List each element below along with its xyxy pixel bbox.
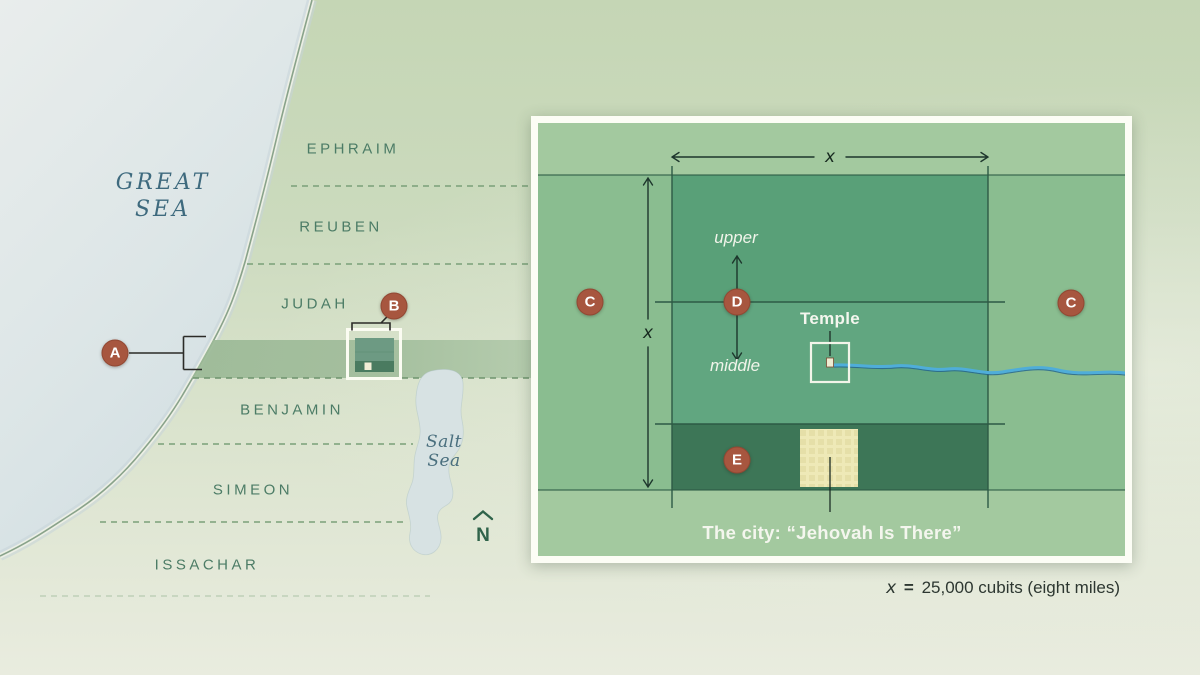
caption-value: 25,000 cubits (eight miles) [922, 578, 1120, 597]
badge-c-right: C [1058, 290, 1085, 317]
territory-label-simeon: SIMEON [213, 482, 293, 499]
temple-label: Temple [800, 309, 860, 329]
territory-label-judah: JUDAH [281, 296, 349, 313]
allotment-inset: x x upper middle Temple The city: “Jehov… [531, 116, 1132, 563]
territory-label-issachar: ISSACHAR [155, 557, 260, 574]
badge-b: B [381, 293, 408, 320]
scale-caption: x = 25,000 cubits (eight miles) [886, 578, 1120, 598]
salt-sea-line2: Sea [426, 452, 462, 471]
caption-x-symbol: x [886, 578, 896, 598]
badge-e: E [724, 447, 751, 474]
great-sea-label: GREAT SEA [116, 169, 211, 223]
inset-drawing [538, 123, 1125, 556]
badge-a: A [102, 340, 129, 367]
great-sea-line1: GREAT [116, 169, 211, 196]
salt-sea-line1: Salt [426, 433, 462, 452]
great-sea-shape [0, 0, 312, 556]
mini-city-strip [355, 361, 394, 372]
great-sea-line2: SEA [116, 196, 211, 223]
salt-sea-label: Salt Sea [426, 433, 462, 471]
city-square [800, 429, 858, 487]
badge-c-left: C [577, 289, 604, 316]
city-label: The city: “Jehovah Is There” [702, 522, 961, 544]
mini-temple-square [365, 363, 372, 371]
x-dimension-vertical-label: x [643, 323, 653, 343]
temple-icon [827, 358, 834, 367]
caption-equals: = [901, 578, 917, 597]
locator-rect-group [348, 330, 401, 379]
badge-d: D [724, 289, 751, 316]
middle-portion-label: middle [710, 356, 760, 376]
illustration-stage: GREAT SEA EPHRAIM REUBEN JUDAH BENJAMIN … [0, 0, 1200, 675]
north-label: N [476, 525, 490, 547]
x-dimension-horizontal-label: x [825, 147, 835, 167]
territory-label-reuben: REUBEN [299, 219, 383, 236]
territory-label-benjamin: BENJAMIN [240, 402, 344, 419]
north-caret-icon [474, 512, 492, 520]
upper-portion-label: upper [714, 228, 757, 248]
territory-label-ephraim: EPHRAIM [307, 141, 400, 158]
